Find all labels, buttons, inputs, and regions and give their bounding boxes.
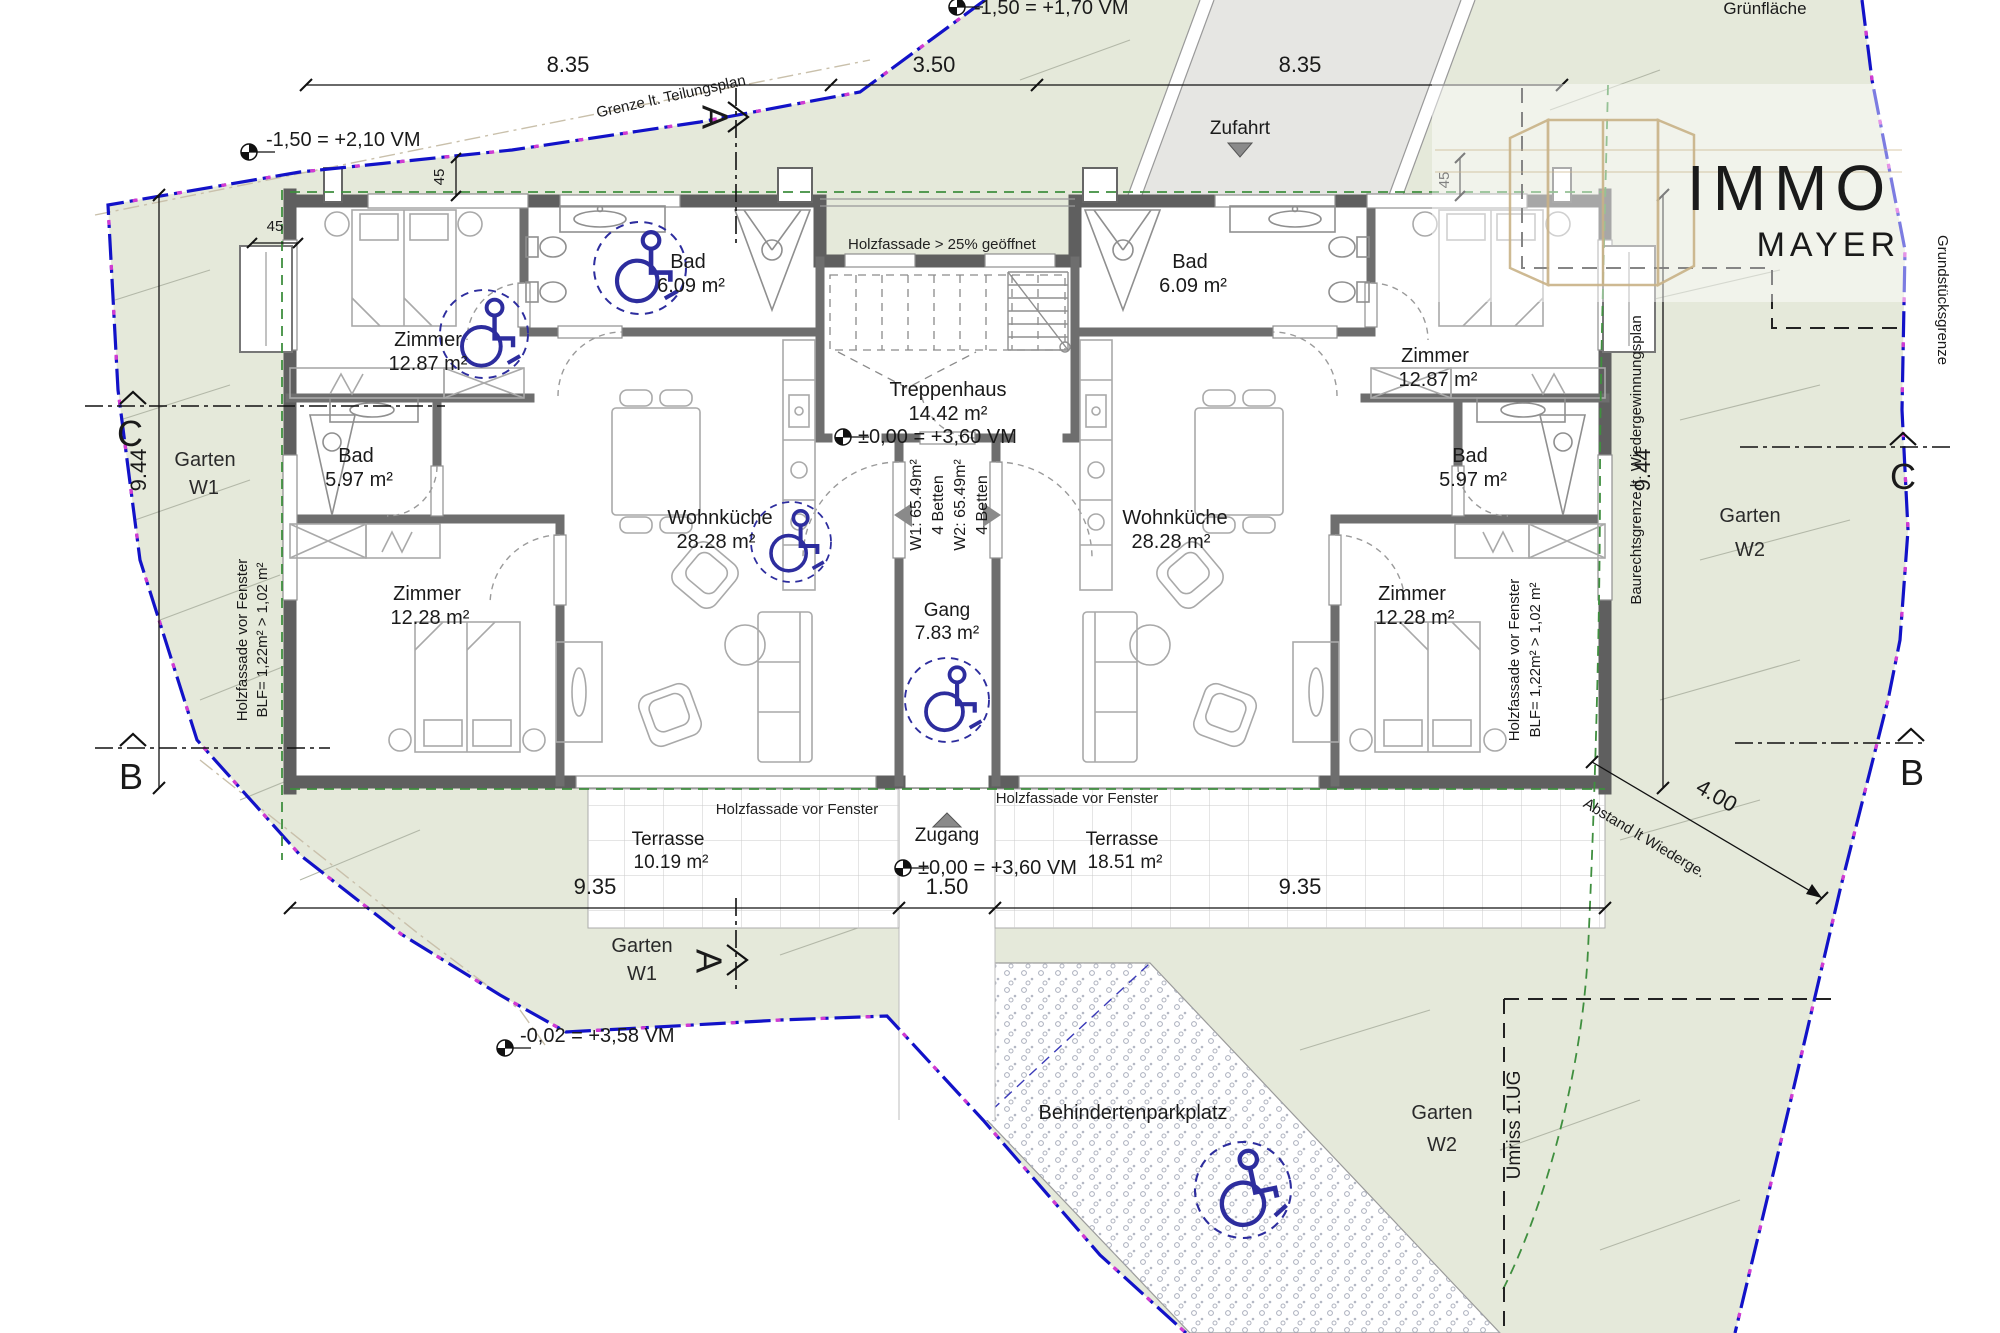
dim-45-left: 45 — [267, 218, 284, 235]
zufahrt-label: Zufahrt — [1210, 118, 1271, 139]
garten-w1-side-1: Garten — [174, 449, 235, 471]
site-plan-drawing: 8.35 3.50 8.35 9.35 1.50 9.35 9.44 9.44 … — [0, 0, 2000, 1333]
room-w1-bad1-name: Bad — [670, 251, 706, 273]
unit-w2-beds: 4 Betten — [974, 475, 991, 535]
garten-w2-bottom-2: W2 — [1427, 1134, 1457, 1156]
section-a-top: A — [694, 105, 735, 129]
garten-w2-side-1: Garten — [1719, 505, 1780, 527]
garten-w2-side-2: W2 — [1735, 539, 1765, 561]
facade-side-right-2: BLF= 1,22m² > 1,02 m² — [1527, 582, 1544, 737]
elevation-bottom-left: -0,02 = +3,58 VM — [520, 1025, 675, 1047]
section-c-left: C — [117, 413, 143, 454]
logo: IMMO MAYER — [1432, 84, 1910, 302]
room-gang-name: Gang — [924, 600, 970, 621]
facade-front-w1: Holzfassade vor Fenster — [716, 801, 879, 818]
grundstuecksgrenze-label: Grundstücksgrenze — [1934, 235, 1951, 365]
room-w1-zimmer2-area: 12.28 m² — [391, 607, 470, 629]
facade-front-w2: Holzfassade vor Fenster — [996, 790, 1159, 807]
facade-open-note: Holzfassade > 25% geöffnet — [848, 236, 1037, 253]
room-w2-wohnkueche-name: Wohnküche — [1122, 507, 1227, 529]
room-w1-terrasse-area: 10.19 m² — [634, 852, 709, 873]
dim-bottom-1: 9.35 — [574, 874, 617, 899]
umriss-ug-label: Umriss 1.UG — [1504, 1071, 1525, 1180]
room-w1-zimmer2-name: Zimmer — [393, 583, 461, 605]
zugang-label: Zugang — [915, 825, 979, 846]
dim-45-top: 45 — [431, 169, 448, 186]
room-w2-bad2-area: 5.97 m² — [1439, 469, 1507, 491]
elevation-top-mid: -1,50 = +1,70 VM — [974, 0, 1129, 19]
room-w1-terrasse-name: Terrasse — [632, 829, 705, 850]
facade-side-right-1: Holzfassade vor Fenster — [1506, 579, 1523, 742]
gruenflaeche-label: Grünfläche — [1723, 0, 1806, 18]
facade-side-left-2: BLF= 1,22m² > 1,02 m² — [254, 562, 271, 717]
section-a-bottom: A — [688, 949, 729, 973]
dim-top-1: 8.35 — [547, 52, 590, 77]
section-c-right: C — [1890, 456, 1916, 497]
room-w1-bad2-name: Bad — [338, 445, 374, 467]
room-w2-zimmer1-area: 12.87 m² — [1399, 369, 1478, 391]
garten-w1-bottom-2: W1 — [627, 963, 657, 985]
logo-mayer: MAYER — [1757, 226, 1900, 264]
baurechtsgrenze-label: Baurechtsgrenze lt. Wiedergewinnungsplan — [1628, 315, 1645, 604]
dim-left-v: 9.44 — [126, 449, 151, 492]
room-w2-bad1-name: Bad — [1172, 251, 1208, 273]
room-w2-bad1-area: 6.09 m² — [1159, 275, 1227, 297]
garten-w1-side-2: W1 — [189, 477, 219, 499]
room-w2-zimmer2-area: 12.28 m² — [1376, 607, 1455, 629]
room-w2-terrasse-area: 18.51 m² — [1088, 852, 1163, 873]
floor-plan-page: 8.35 3.50 8.35 9.35 1.50 9.35 9.44 9.44 … — [0, 0, 2000, 1333]
room-w1-bad2-area: 5.97 m² — [325, 469, 393, 491]
dim-top-3: 8.35 — [1279, 52, 1322, 77]
elevation-treppenhaus: ±0,00 = +3,60 VM — [858, 426, 1017, 448]
room-treppenhaus-area: 14.42 m² — [909, 403, 988, 425]
dim-bottom-3: 9.35 — [1279, 874, 1322, 899]
room-gang-area: 7.83 m² — [915, 623, 979, 644]
room-w1-wohnkueche-name: Wohnküche — [667, 507, 772, 529]
room-w1-bad1-area: 6.09 m² — [657, 275, 725, 297]
room-w1-zimmer1-name: Zimmer — [394, 329, 462, 351]
section-b-right: B — [1900, 752, 1924, 793]
elevation-zugang: ±0,00 = +3,60 VM — [918, 857, 1077, 879]
unit-w1-id: W1: 65.49m² — [908, 459, 925, 551]
room-w2-terrasse-name: Terrasse — [1086, 829, 1159, 850]
dim-top-2: 3.50 — [913, 52, 956, 77]
garten-w2-bottom-1: Garten — [1411, 1102, 1472, 1124]
section-b-left: B — [119, 756, 143, 797]
logo-immo: IMMO — [1687, 152, 1893, 224]
unit-w1-beds: 4 Betten — [930, 475, 947, 535]
room-w2-zimmer1-name: Zimmer — [1401, 345, 1469, 367]
elevation-top-left: -1,50 = +2,10 VM — [266, 129, 421, 151]
room-w1-wohnkueche-area: 28.28 m² — [677, 531, 756, 553]
room-w2-wohnkueche-area: 28.28 m² — [1132, 531, 1211, 553]
unit-w2-id: W2: 65.49m² — [952, 459, 969, 551]
room-treppenhaus-name: Treppenhaus — [889, 379, 1006, 401]
garten-w1-bottom-1: Garten — [611, 935, 672, 957]
room-w2-zimmer2-name: Zimmer — [1378, 583, 1446, 605]
building-footprint — [290, 195, 1605, 788]
room-w1-zimmer1-area: 12.87 m² — [389, 353, 468, 375]
room-w2-bad2-name: Bad — [1452, 445, 1488, 467]
behindertenparkplatz-label: Behindertenparkplatz — [1038, 1102, 1227, 1124]
facade-side-left-1: Holzfassade vor Fenster — [234, 559, 251, 722]
